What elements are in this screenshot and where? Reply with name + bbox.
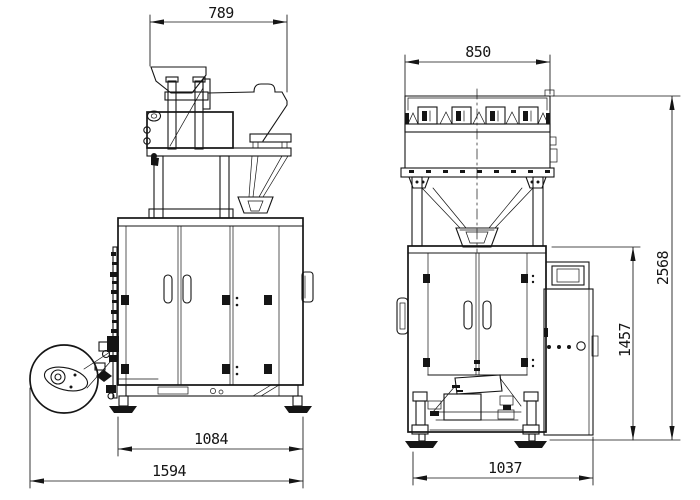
- ring-plate-bolts: [409, 170, 550, 173]
- drawing-canvas: 789: [0, 0, 700, 500]
- side-weigher-silhouette: [208, 84, 291, 148]
- front-cabinet: [397, 246, 546, 432]
- front-dim-1037: 1037: [413, 437, 593, 485]
- front-dim-1457: 1457: [552, 247, 640, 440]
- side-base-frame: [109, 379, 312, 413]
- panel-button: [557, 345, 561, 349]
- front-discharge-unit: [428, 375, 523, 430]
- panel-knob: [577, 342, 585, 350]
- side-door-handle-slot: [183, 275, 191, 303]
- front-view: 850: [397, 43, 680, 485]
- dim-label-2568: 2568: [654, 250, 672, 285]
- front-control-column: [544, 262, 598, 435]
- technical-drawing: 789: [0, 0, 700, 500]
- side-film-roll: [30, 345, 110, 413]
- front-dim-2568: 2568: [550, 96, 680, 440]
- side-view: 789: [30, 4, 313, 488]
- dim-label-789: 789: [208, 4, 234, 22]
- side-discharge-funnel: [238, 156, 288, 213]
- dim-label-1594: 1594: [152, 462, 187, 480]
- front-funnel: [422, 188, 533, 247]
- front-support-frame: [409, 177, 546, 246]
- side-elevator: [165, 77, 210, 149]
- front-side-handle: [397, 298, 408, 334]
- weigher-heads: [418, 107, 538, 124]
- panel-button: [567, 345, 571, 349]
- side-dim-1594: 1594: [30, 388, 303, 488]
- panel-button: [547, 345, 551, 349]
- dim-label-1457: 1457: [616, 323, 634, 357]
- hmi-screen: [557, 269, 579, 282]
- dim-label-850: 850: [465, 43, 491, 61]
- dim-label-1037: 1037: [488, 459, 522, 477]
- front-multihead-weigher: [401, 90, 557, 177]
- side-door-handle-slot: [164, 275, 172, 303]
- dim-label-1084: 1084: [194, 430, 229, 448]
- side-cabinet: [118, 218, 313, 385]
- side-dim-789: 789: [150, 4, 287, 92]
- front-door-handle-slot: [464, 301, 472, 329]
- front-door-handle-slot: [483, 301, 491, 329]
- side-dim-1084: 1084: [118, 417, 303, 488]
